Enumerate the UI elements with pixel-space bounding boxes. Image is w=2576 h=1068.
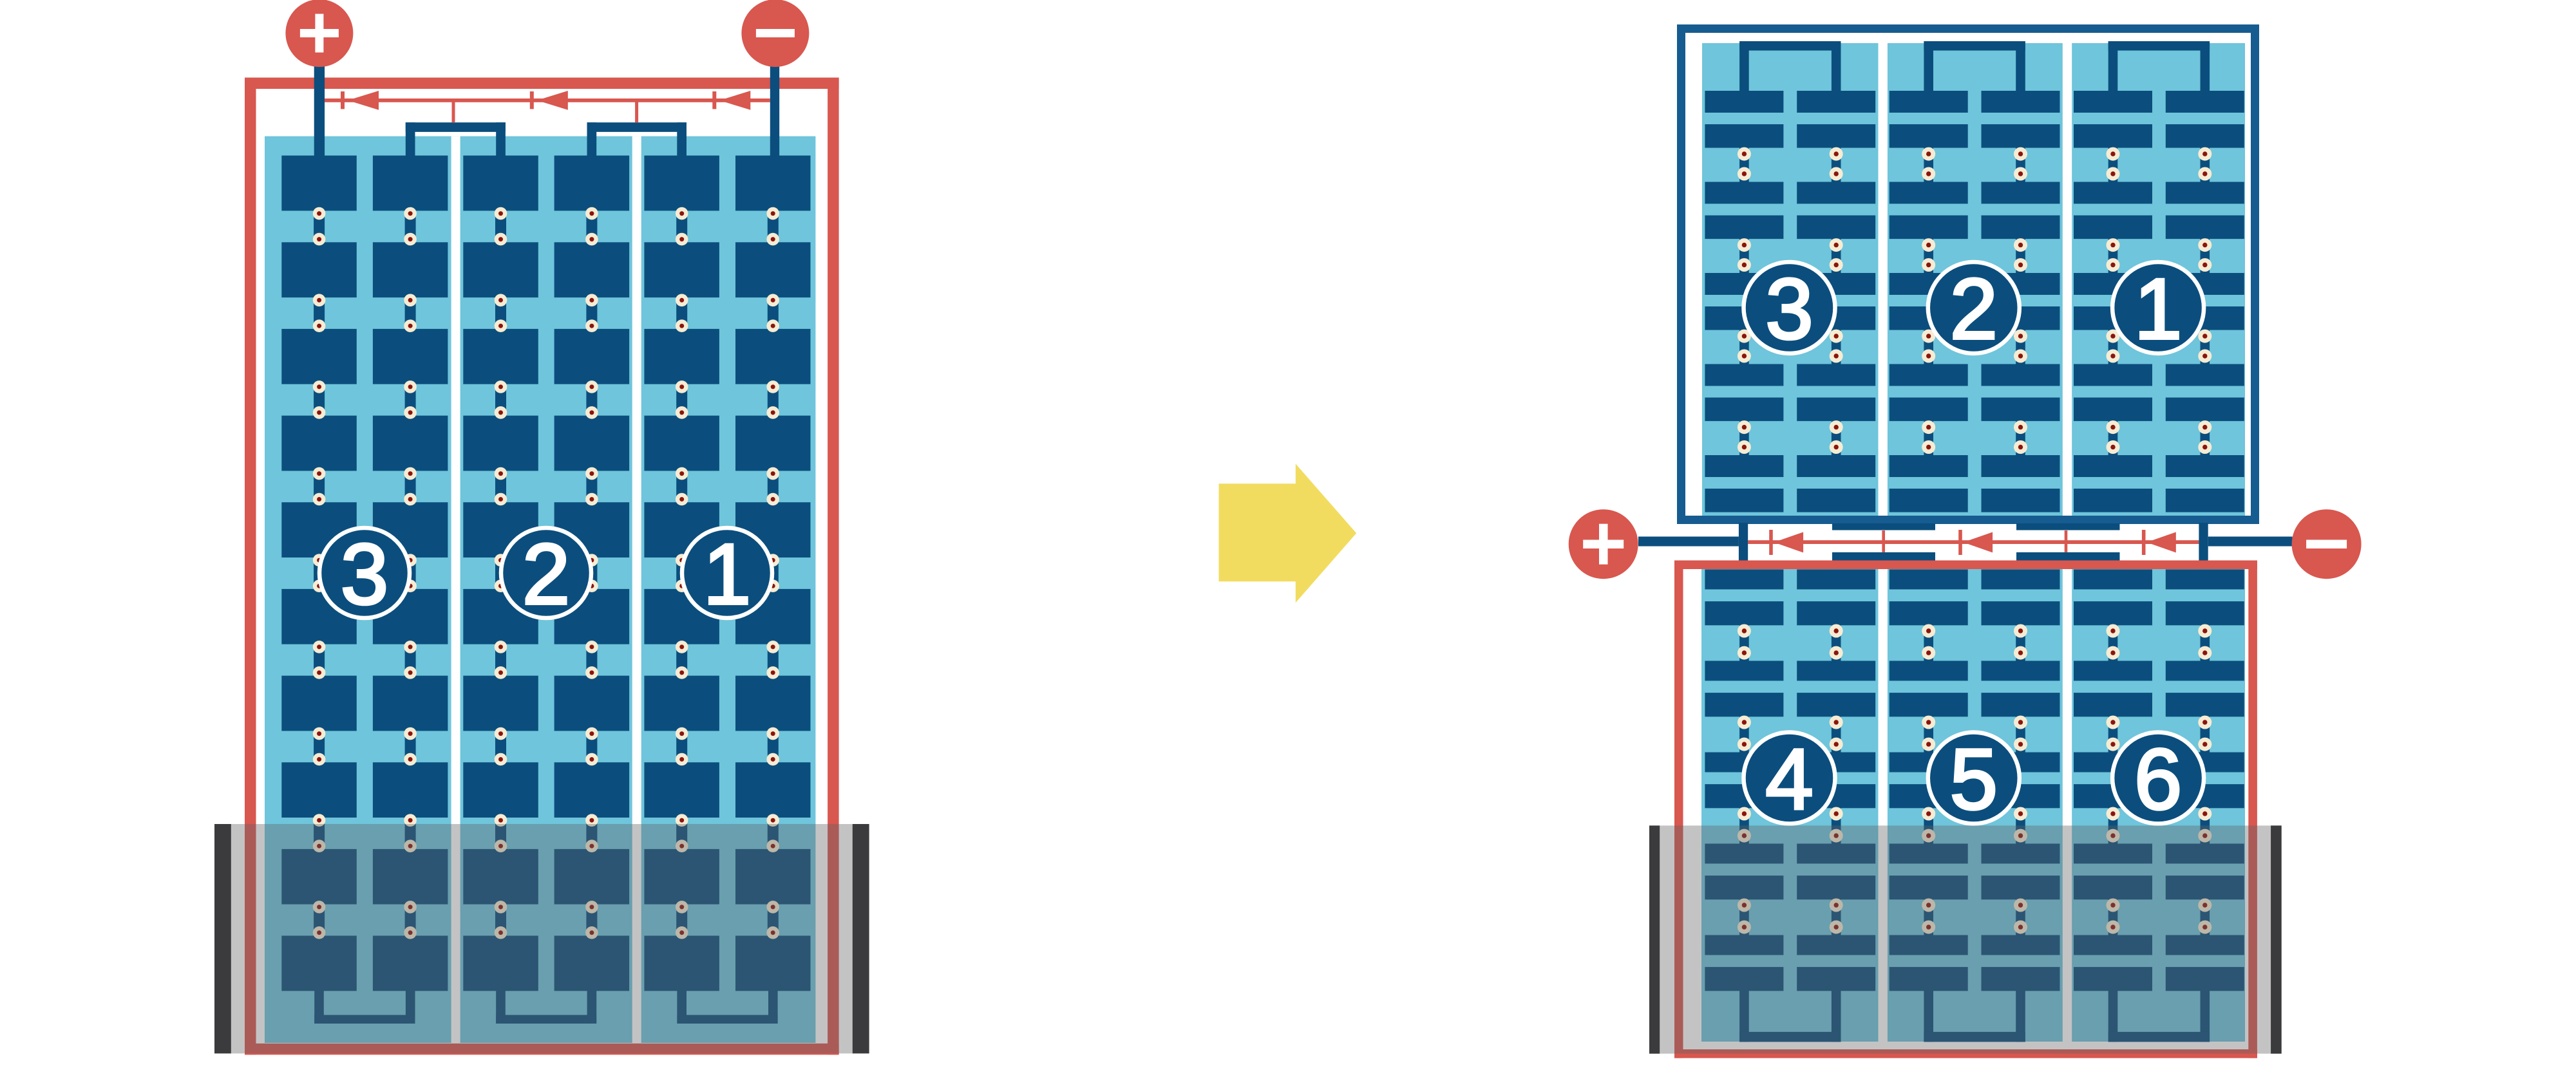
svg-text:5: 5 <box>1950 732 1998 828</box>
svg-text:3: 3 <box>341 527 389 623</box>
svg-text:4: 4 <box>1765 732 1814 828</box>
svg-text:3: 3 <box>1765 261 1814 357</box>
svg-text:2: 2 <box>522 527 571 623</box>
svg-text:2: 2 <box>1950 261 1998 357</box>
svg-text:1: 1 <box>703 527 752 623</box>
svg-text:1: 1 <box>2134 261 2183 357</box>
svg-text:6: 6 <box>2134 732 2183 828</box>
